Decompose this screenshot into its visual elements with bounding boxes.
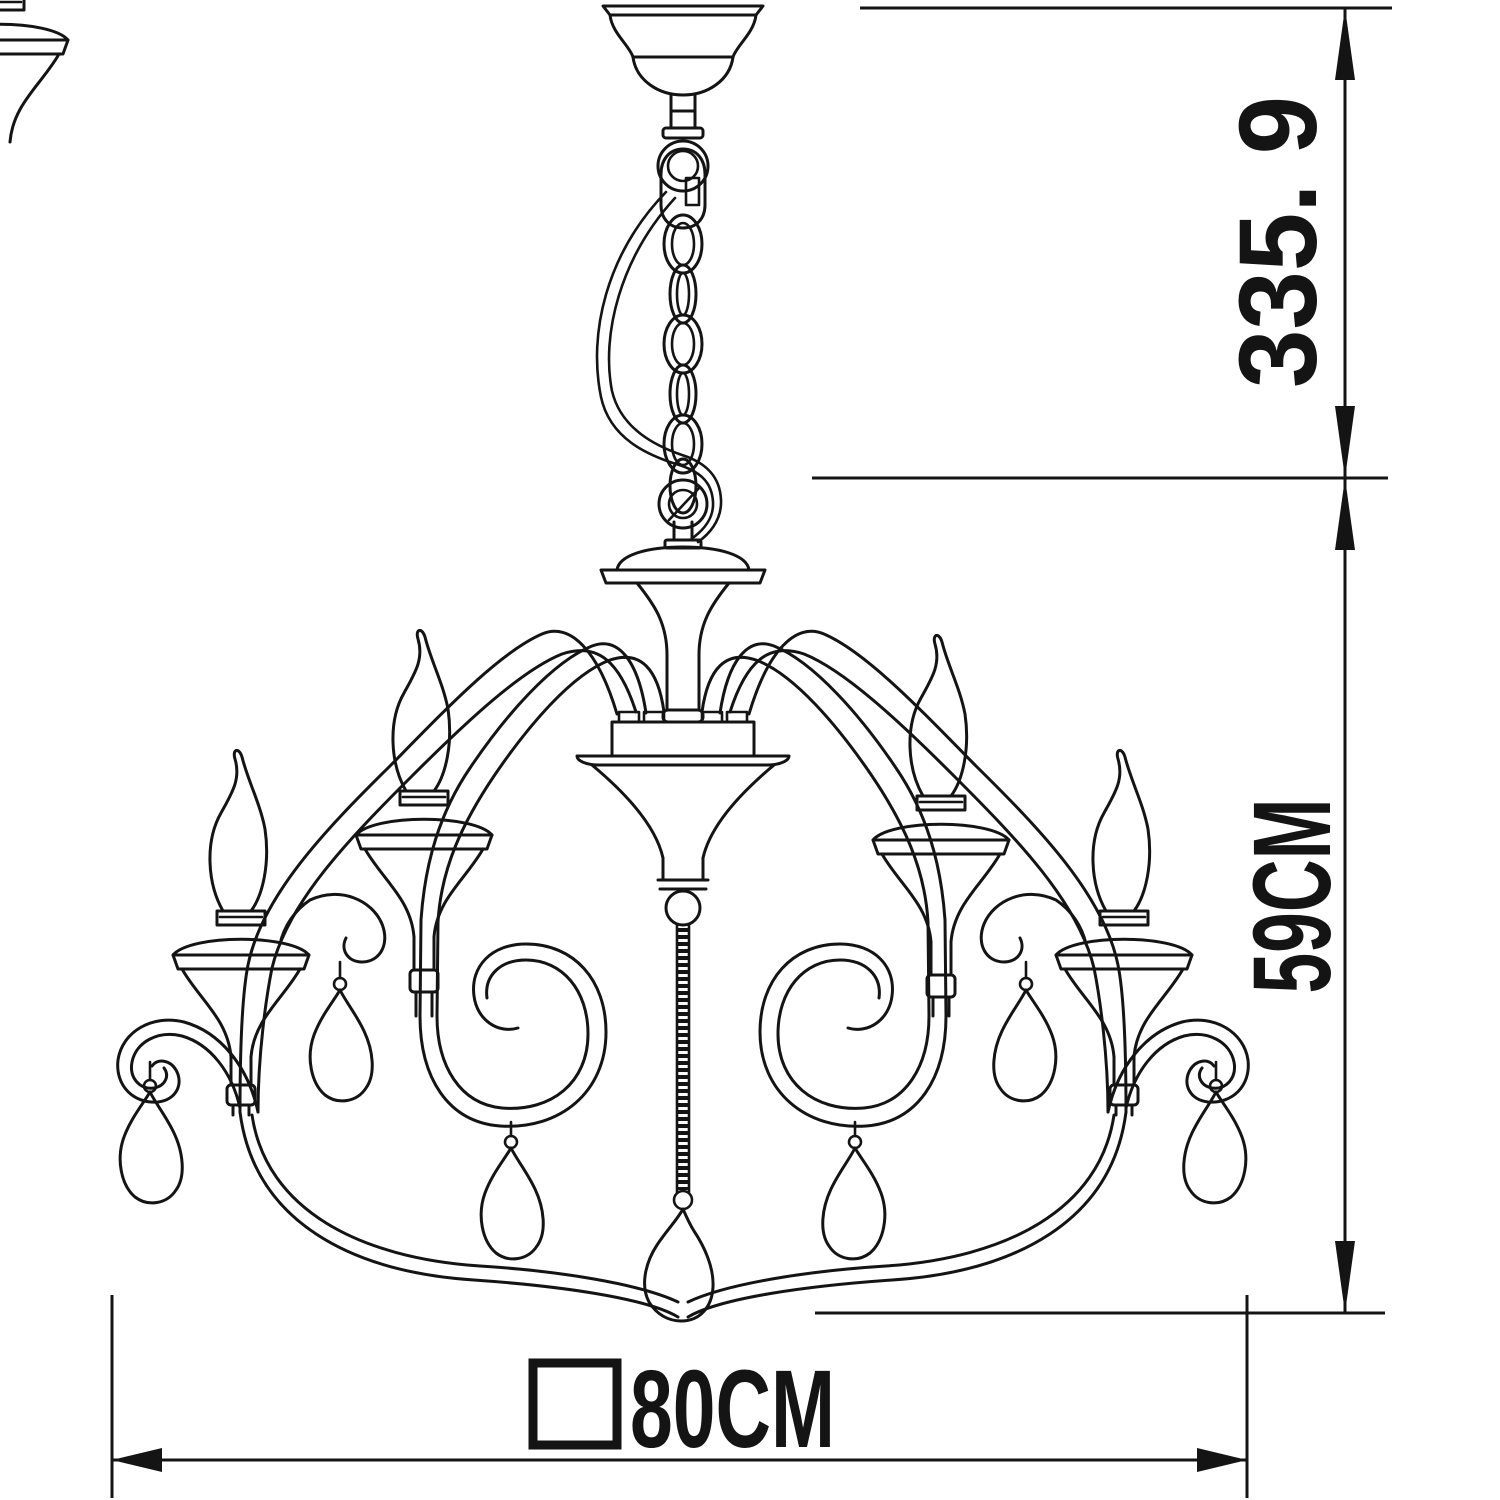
arrow-up-icon <box>1335 8 1355 80</box>
chain-height-label: 335. 9 <box>1217 96 1340 388</box>
arms-right-mirror <box>688 631 1248 1317</box>
body-height-label: 59CM <box>1231 799 1354 994</box>
hanging-chain <box>658 141 708 513</box>
dimension-chain-height: 335. 9 <box>812 8 1392 478</box>
crystal-teardrop-outer <box>120 1062 182 1203</box>
candle-mid-right <box>873 635 1009 1016</box>
outer-arm <box>118 631 678 1317</box>
technical-drawing-page: 335. 9 59CM 80CM <box>0 0 1500 1500</box>
arrow-down-icon <box>1335 406 1355 478</box>
chandelier-body-column <box>577 480 789 925</box>
ceiling-canopy <box>603 6 763 138</box>
arrow-up-icon <box>1335 478 1355 550</box>
crystal-teardrop-center <box>645 1209 713 1321</box>
arrow-down-icon <box>1335 1241 1355 1313</box>
arrow-right-icon <box>1197 1448 1247 1472</box>
center-drop-chain <box>674 925 692 1209</box>
crystal-teardrop-scroll <box>310 962 372 1101</box>
dimension-width: 80CM <box>112 1295 1247 1498</box>
crystal-teardrop-inner <box>481 1122 543 1259</box>
square-symbol-icon <box>533 1363 617 1445</box>
arrow-left-icon <box>112 1448 162 1472</box>
width-label: 80CM <box>630 1348 835 1471</box>
chandelier-technical-drawing: 335. 9 59CM 80CM <box>0 0 1500 1500</box>
